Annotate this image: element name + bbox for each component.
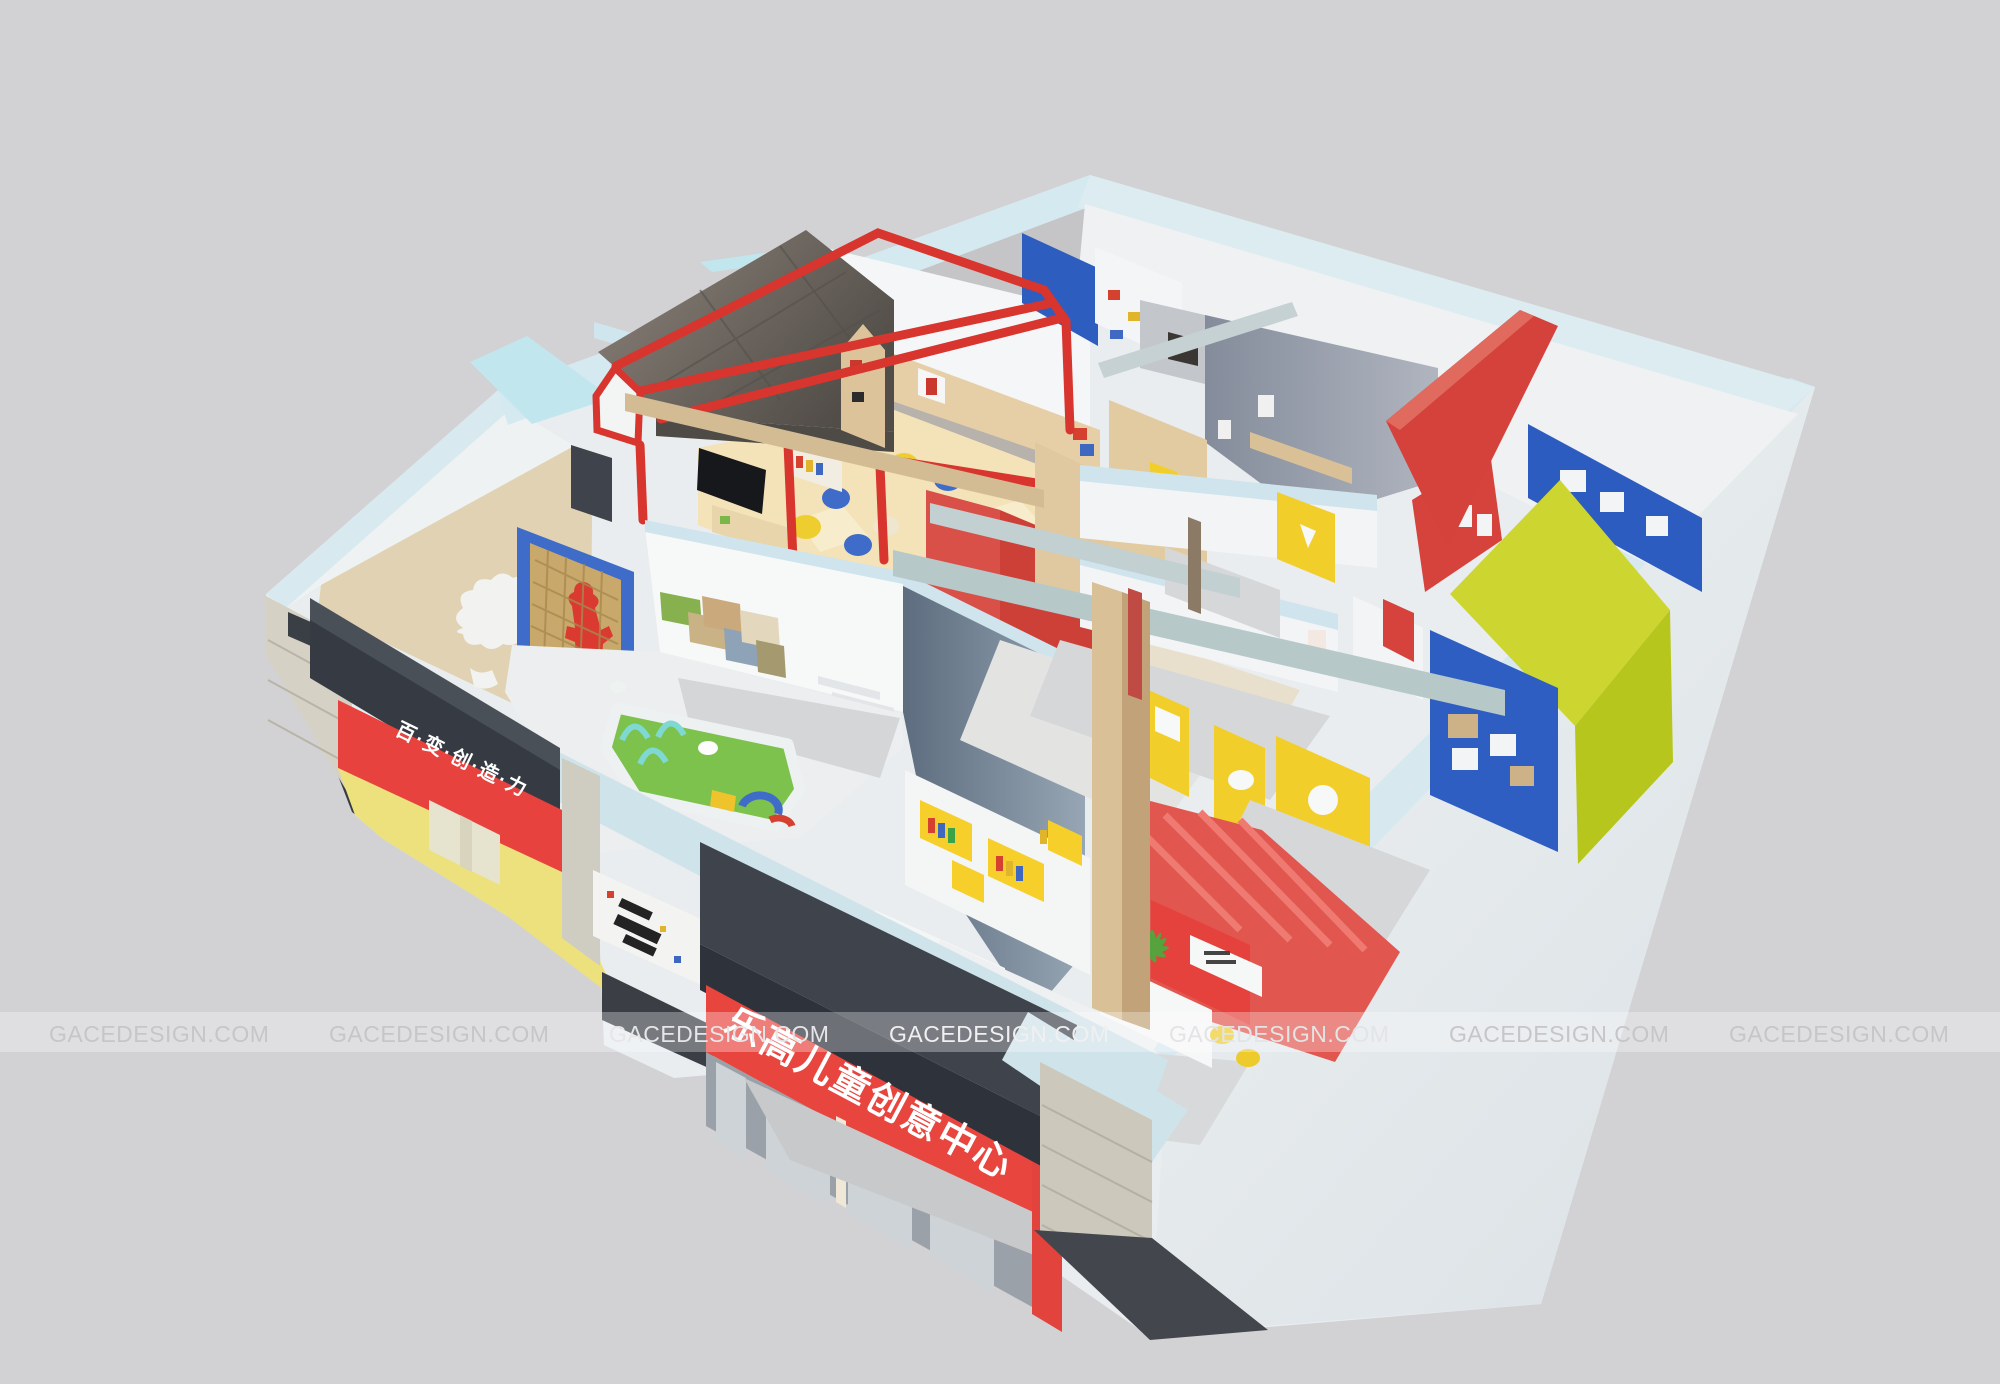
svg-text:GACEDESIGN.COM: GACEDESIGN.COM (329, 1021, 549, 1047)
svg-text:GACEDESIGN.COM: GACEDESIGN.COM (889, 1021, 1109, 1047)
svg-text:GACEDESIGN.COM: GACEDESIGN.COM (1169, 1021, 1389, 1047)
svg-text:GACEDESIGN.COM: GACEDESIGN.COM (49, 1021, 269, 1047)
svg-text:GACEDESIGN.COM: GACEDESIGN.COM (609, 1021, 829, 1047)
svg-text:GACEDESIGN.COM: GACEDESIGN.COM (1449, 1021, 1669, 1047)
svg-text:GACEDESIGN.COM: GACEDESIGN.COM (1729, 1021, 1949, 1047)
